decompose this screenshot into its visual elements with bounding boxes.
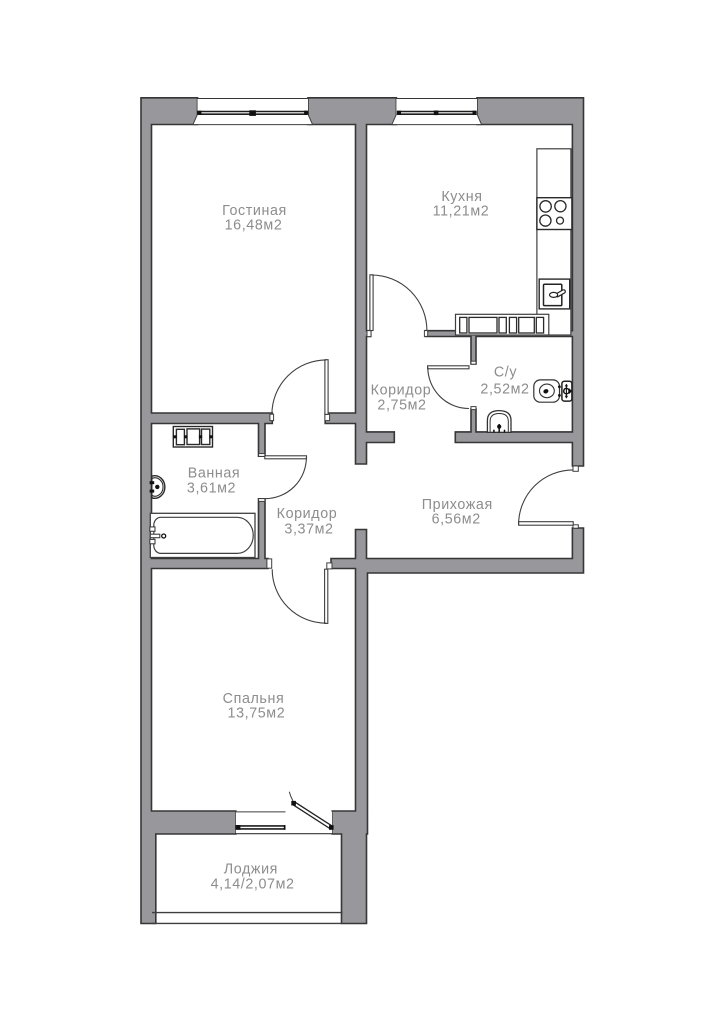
- svg-text:Лоджия: Лоджия: [224, 861, 278, 877]
- svg-text:6,56м2: 6,56м2: [432, 512, 481, 528]
- svg-text:3,37м2: 3,37м2: [284, 522, 333, 538]
- svg-text:Гостиная: Гостиная: [222, 203, 287, 219]
- svg-text:Коридор: Коридор: [277, 506, 338, 522]
- svg-text:2,75м2: 2,75м2: [377, 398, 426, 414]
- svg-text:13,75м2: 13,75м2: [228, 706, 286, 722]
- svg-text:Спальня: Спальня: [223, 691, 285, 707]
- svg-text:2,52м2: 2,52м2: [480, 381, 529, 397]
- svg-text:3,61м2: 3,61м2: [187, 480, 236, 496]
- svg-text:4,14/2,07м2: 4,14/2,07м2: [211, 877, 295, 893]
- svg-text:Прихожая: Прихожая: [422, 497, 493, 513]
- svg-text:Ванная: Ванная: [188, 465, 241, 481]
- svg-text:16,48м2: 16,48м2: [225, 218, 283, 234]
- svg-text:11,21м2: 11,21м2: [433, 204, 490, 220]
- svg-text:Коридор: Коридор: [371, 383, 432, 399]
- svg-text:С/у: С/у: [494, 365, 517, 381]
- svg-text:Кухня: Кухня: [441, 189, 482, 205]
